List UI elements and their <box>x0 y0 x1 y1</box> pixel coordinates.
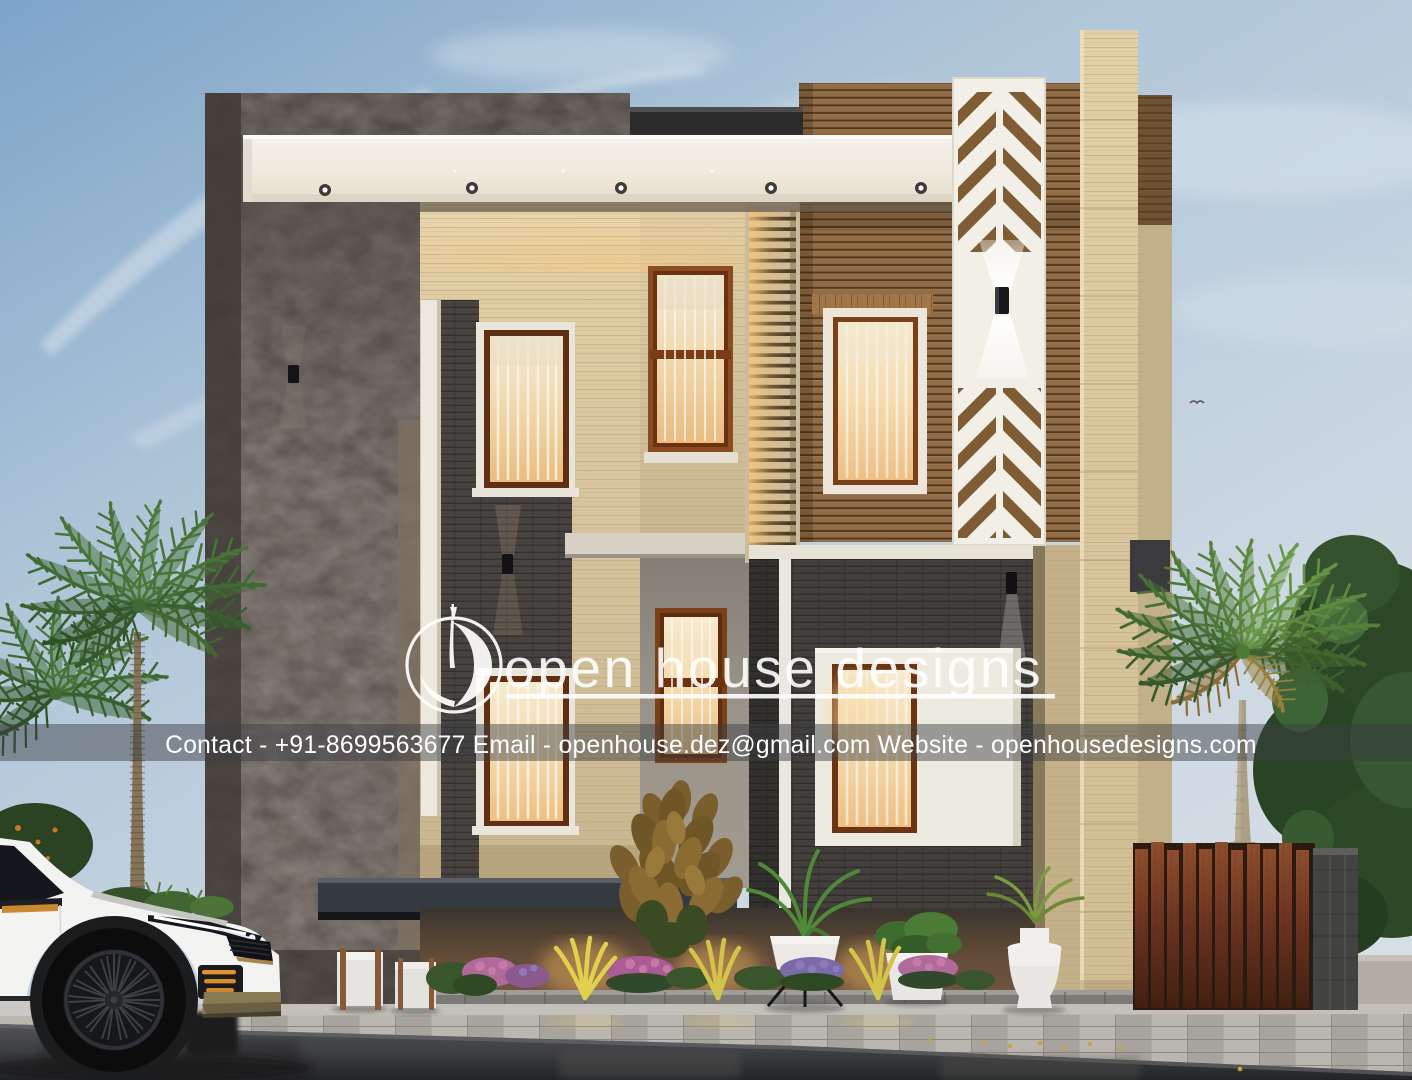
svg-text:Contact - +91-8699563677 Emai: Contact - +91-8699563677 Email - openhou… <box>165 732 1257 759</box>
svg-text:open house designs: open house designs <box>504 637 1043 699</box>
